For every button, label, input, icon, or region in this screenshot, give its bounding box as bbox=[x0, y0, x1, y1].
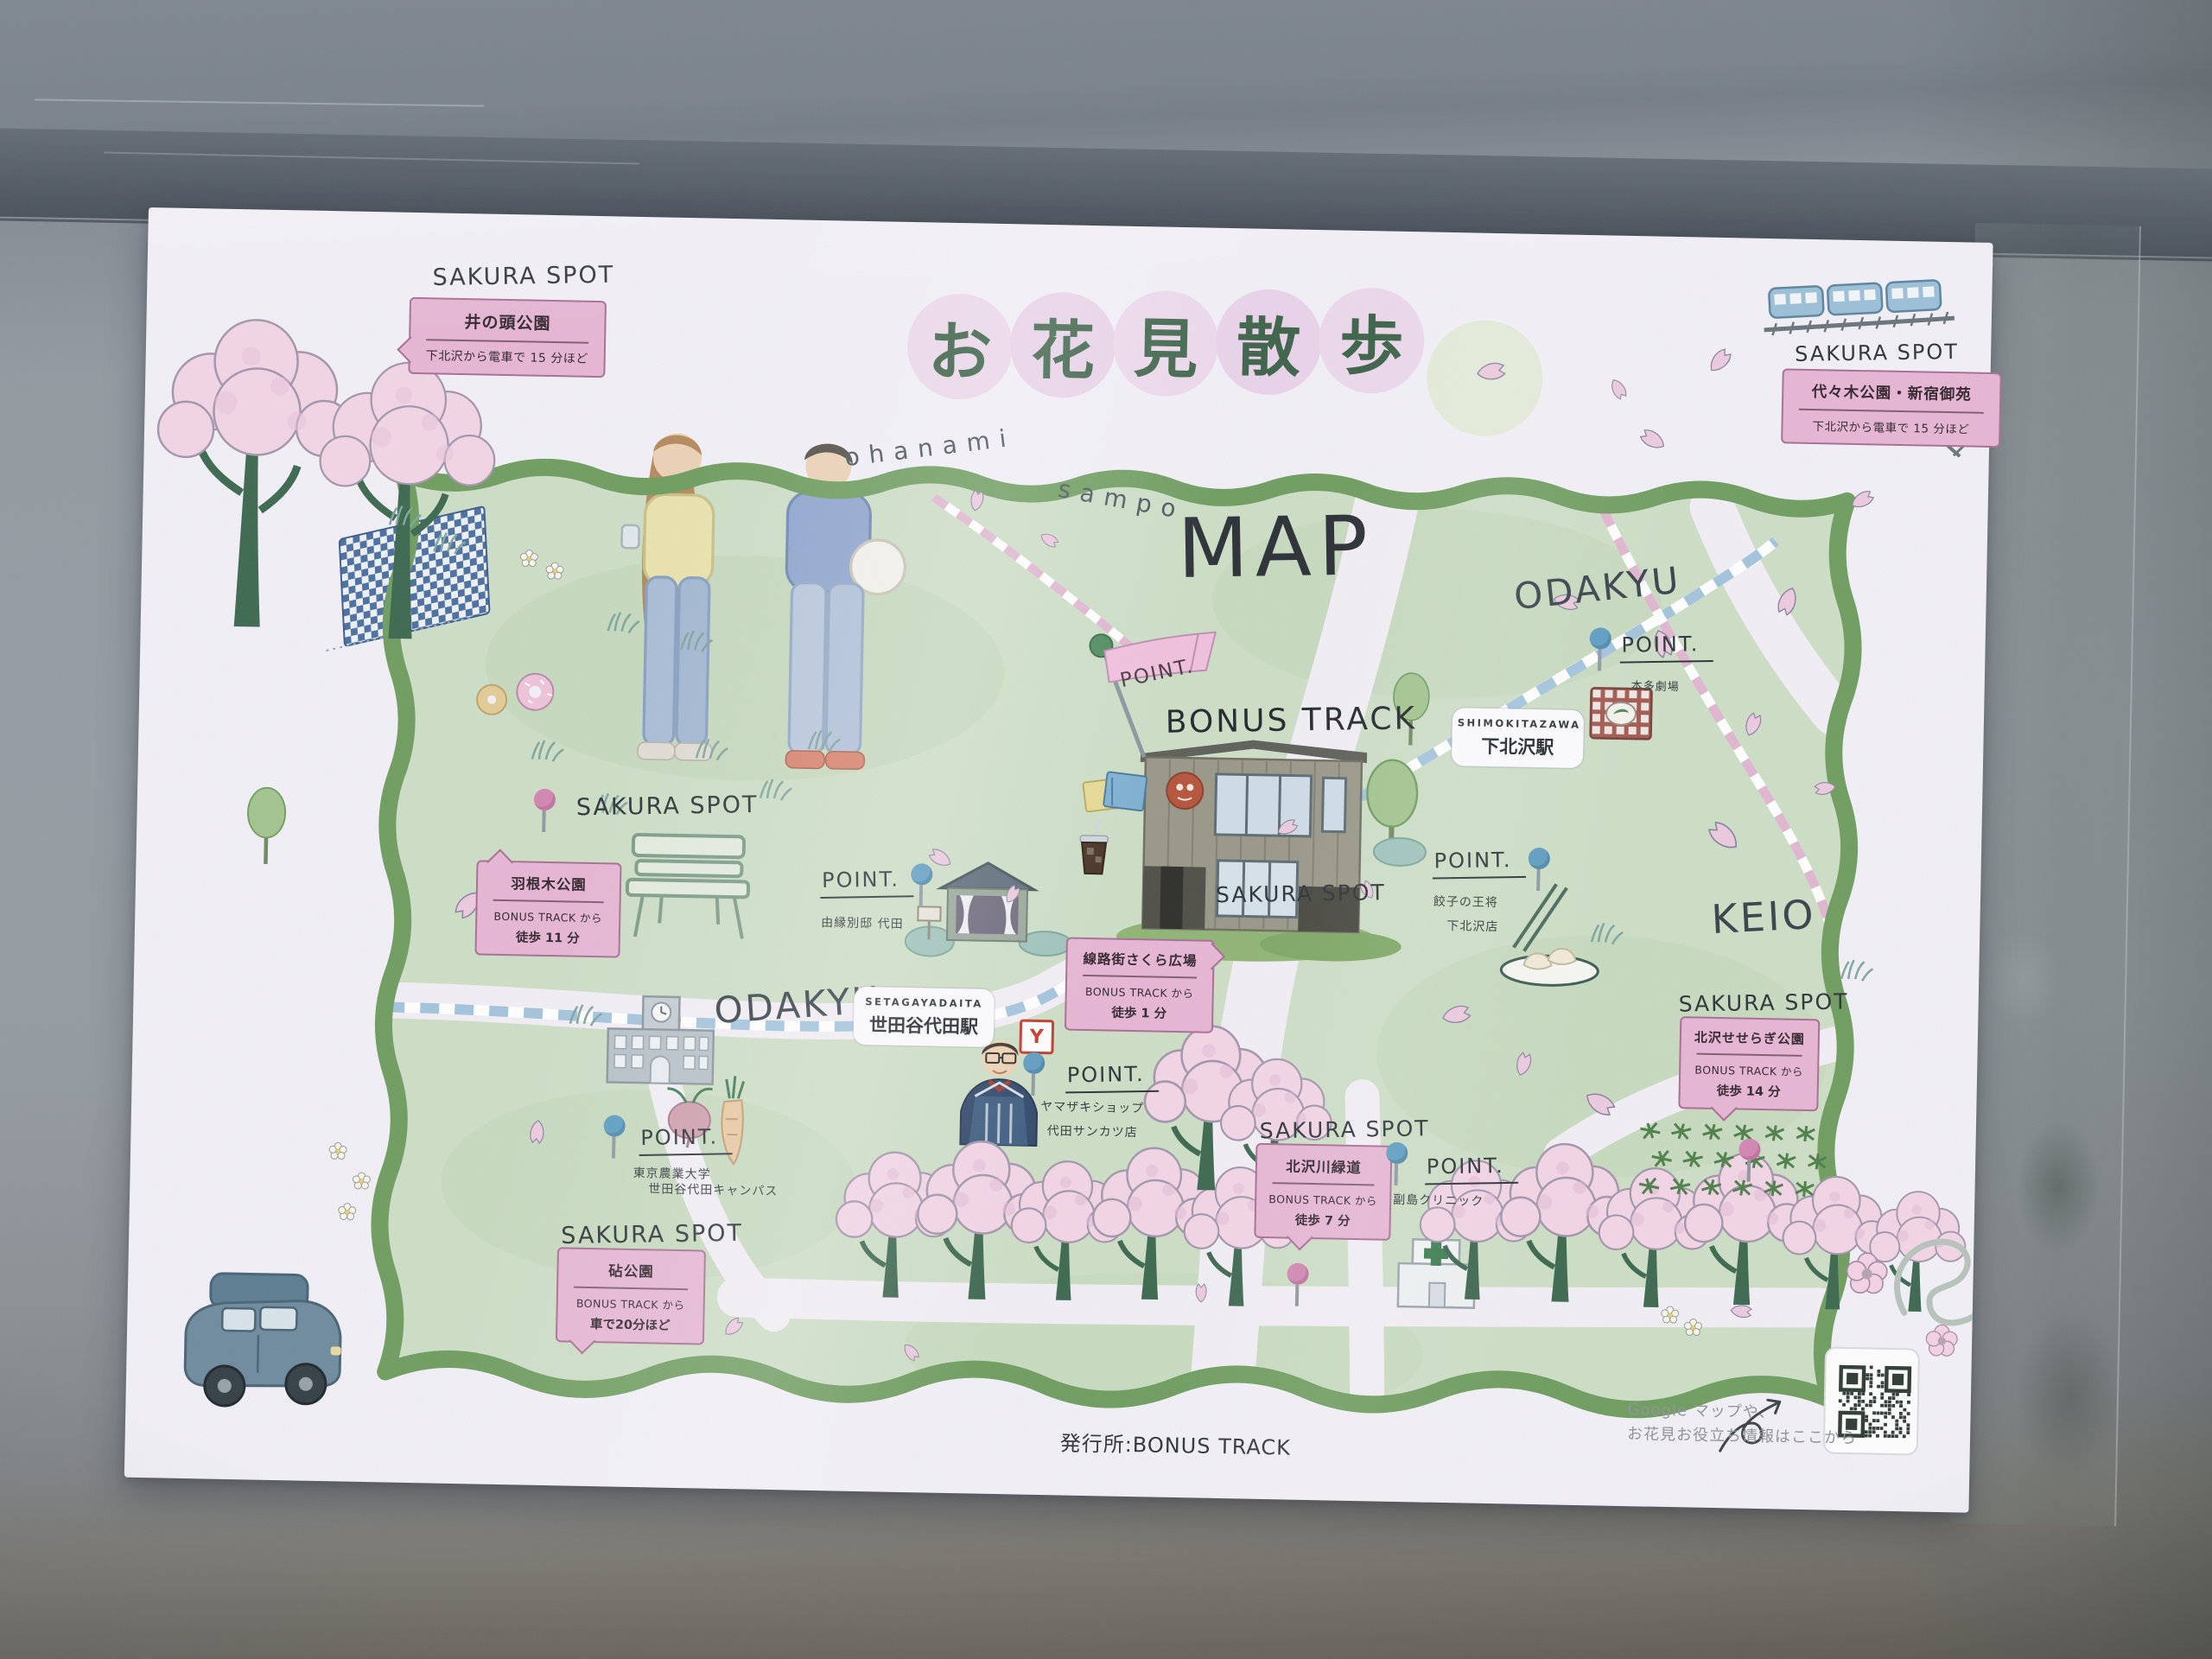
map-pin-nodai bbox=[602, 1115, 626, 1158]
station-jp: 下北沢駅 bbox=[1457, 732, 1579, 760]
spot-from: BONUS TRACK から bbox=[565, 1294, 696, 1313]
divider bbox=[1083, 975, 1197, 979]
rail-label-odakyu-right: ODAKYU bbox=[1512, 558, 1683, 618]
rail-label-keio: KEIO bbox=[1710, 891, 1817, 943]
spot-box-yoyogi: 代々木公園・新宿御苑 下北沢から電車で 15 分ほど bbox=[1781, 368, 2002, 448]
map-pin-seseragi bbox=[1738, 1139, 1761, 1182]
station-en: SHIMOKITAZAWA bbox=[1458, 716, 1579, 731]
spot-box-senrogai: 線路街さくら広場 BONUS TRACK から 徒歩 1 分 bbox=[1065, 938, 1215, 1033]
spot-note: 下北沢から電車で 15 分ほど bbox=[417, 346, 597, 367]
spot-box-seseragi: 北沢せせらぎ公園 BONUS TRACK から 徒歩 14 分 bbox=[1678, 1016, 1820, 1111]
spot-time: 徒歩 1 分 bbox=[1073, 1002, 1205, 1023]
qr-caption-1: Google マップや、 bbox=[1627, 1397, 1775, 1422]
bonus-track-name: BONUS TRACK bbox=[1166, 701, 1418, 741]
divider bbox=[426, 339, 588, 344]
spot-time: 徒歩 14 分 bbox=[1688, 1080, 1810, 1101]
point-caption-theater: 本多劇場 bbox=[1631, 677, 1680, 694]
spot-name: 北沢川緑道 bbox=[1264, 1154, 1383, 1178]
point-label-yuen: POINT. bbox=[820, 867, 913, 899]
spot-from: BONUS TRACK から bbox=[1074, 982, 1205, 1001]
station-box-setagayadaita: SETAGAYADAITA 世田谷代田駅 bbox=[854, 987, 995, 1047]
title-char: 歩 bbox=[1318, 287, 1425, 394]
publisher-line: 発行所:BONUS TRACK bbox=[1059, 1427, 1291, 1461]
spot-box-inokashira: 井の頭公園 下北沢から電車で 15 分ほど bbox=[408, 297, 607, 378]
point-caption-yamazaki-2: 代田サンカツ店 bbox=[1046, 1122, 1137, 1141]
spot-name: 代々木公園・新宿御苑 bbox=[1790, 380, 1993, 405]
point-caption-gyoza-1: 餃子の王将 bbox=[1433, 893, 1498, 911]
station-en: SETAGAYADAITA bbox=[859, 995, 988, 1010]
photo-scene: SAKURA SPOT 井の頭公園 下北沢から電車で 15 分ほど お 花 見 … bbox=[0, 0, 2212, 1659]
point-label-clinic: POINT. bbox=[1425, 1154, 1518, 1185]
spot-box-kinuta: 砧公園 BONUS TRACK から 車で20分ほど bbox=[556, 1247, 706, 1344]
point-label-theater: POINT. bbox=[1619, 632, 1713, 664]
map-pin-kitazawagawa bbox=[1286, 1263, 1309, 1306]
spot-name: 砧公園 bbox=[565, 1258, 696, 1281]
spot-name: 井の頭公園 bbox=[417, 308, 597, 335]
divider bbox=[493, 899, 604, 903]
divider bbox=[1799, 409, 1984, 414]
subtitle-ohanami: ohanami bbox=[843, 423, 1018, 473]
point-caption-gyoza-2: 下北沢店 bbox=[1446, 917, 1498, 935]
sakura-spot-heading-hanegi: SAKURA SPOT bbox=[576, 791, 759, 821]
title-char: 見 bbox=[1112, 289, 1219, 397]
sakura-spot-heading-inokashira: SAKURA SPOT bbox=[432, 262, 614, 291]
point-label-gyoza: POINT. bbox=[1432, 848, 1525, 880]
spot-time: 徒歩 7 分 bbox=[1263, 1210, 1382, 1230]
sakura-spot-heading-senrogai: SAKURA SPOT bbox=[1216, 880, 1386, 907]
point-caption-yuen: 由縁別邸 代田 bbox=[821, 913, 904, 932]
poster-title: お 花 見 散 歩 bbox=[909, 293, 1425, 408]
spot-name: 北沢せせらぎ公園 bbox=[1688, 1027, 1811, 1048]
divider bbox=[1273, 1182, 1375, 1185]
sakura-spot-heading-kinuta: SAKURA SPOT bbox=[561, 1220, 743, 1249]
point-caption-nodai-2: 世田谷代田キャンパス bbox=[648, 1179, 778, 1199]
yamazaki-shop-badge: Y bbox=[1019, 1020, 1054, 1055]
spot-box-kitazawagawa: 北沢川緑道 BONUS TRACK から 徒歩 7 分 bbox=[1254, 1143, 1392, 1241]
spot-note: 下北沢から電車で 15 分ほど bbox=[1789, 416, 1992, 437]
map-word: MAP bbox=[1177, 499, 1376, 597]
title-char: お bbox=[906, 293, 1014, 400]
map-pin-hanegi bbox=[532, 789, 556, 832]
divider bbox=[574, 1287, 688, 1291]
spot-name: 羽根木公園 bbox=[485, 872, 613, 895]
divider bbox=[1697, 1053, 1802, 1057]
spot-from: BONUS TRACK から bbox=[1263, 1190, 1382, 1209]
title-char: 散 bbox=[1215, 289, 1322, 396]
point-label-nodai: POINT. bbox=[639, 1124, 732, 1156]
station-box-shimokitazawa: SHIMOKITAZAWA 下北沢駅 bbox=[1452, 708, 1584, 768]
qr-caption-2: お花見お役立ち情報はここから bbox=[1627, 1421, 1857, 1448]
map-pin-theater bbox=[1588, 627, 1611, 671]
station-jp: 世田谷代田駅 bbox=[859, 1011, 989, 1039]
subtitle-sampo: sampo bbox=[1056, 474, 1187, 525]
spot-from: BONUS TRACK から bbox=[484, 907, 612, 926]
point-caption-yamazaki-1: ヤマザキショップ bbox=[1040, 1097, 1144, 1116]
ohanami-map-poster: SAKURA SPOT 井の頭公園 下北沢から電車で 15 分ほど お 花 見 … bbox=[124, 207, 1993, 1513]
sakura-spot-heading-kitazawagawa: SAKURA SPOT bbox=[1260, 1116, 1430, 1143]
spot-name: 線路街さくら広場 bbox=[1074, 949, 1205, 970]
map-pin-clinic bbox=[1385, 1142, 1408, 1185]
spot-from: BONUS TRACK から bbox=[1688, 1060, 1810, 1079]
map-pin-gyoza bbox=[1527, 848, 1550, 891]
title-char: 花 bbox=[1009, 291, 1116, 398]
sakura-spot-heading-seseragi: SAKURA SPOT bbox=[1678, 989, 1848, 1017]
bonus-track-flag-label: POINT. bbox=[1118, 655, 1196, 692]
point-caption-clinic: 副島クリニック bbox=[1393, 1191, 1484, 1210]
spot-box-hanegi: 羽根木公園 BONUS TRACK から 徒歩 11 分 bbox=[474, 860, 621, 957]
sakura-spot-heading-yoyogi: SAKURA SPOT bbox=[1795, 340, 1959, 366]
point-label-yamazaki: POINT. bbox=[1065, 1062, 1159, 1094]
map-pin-yamazaki bbox=[1021, 1052, 1045, 1096]
spot-time: 徒歩 11 分 bbox=[484, 927, 612, 948]
